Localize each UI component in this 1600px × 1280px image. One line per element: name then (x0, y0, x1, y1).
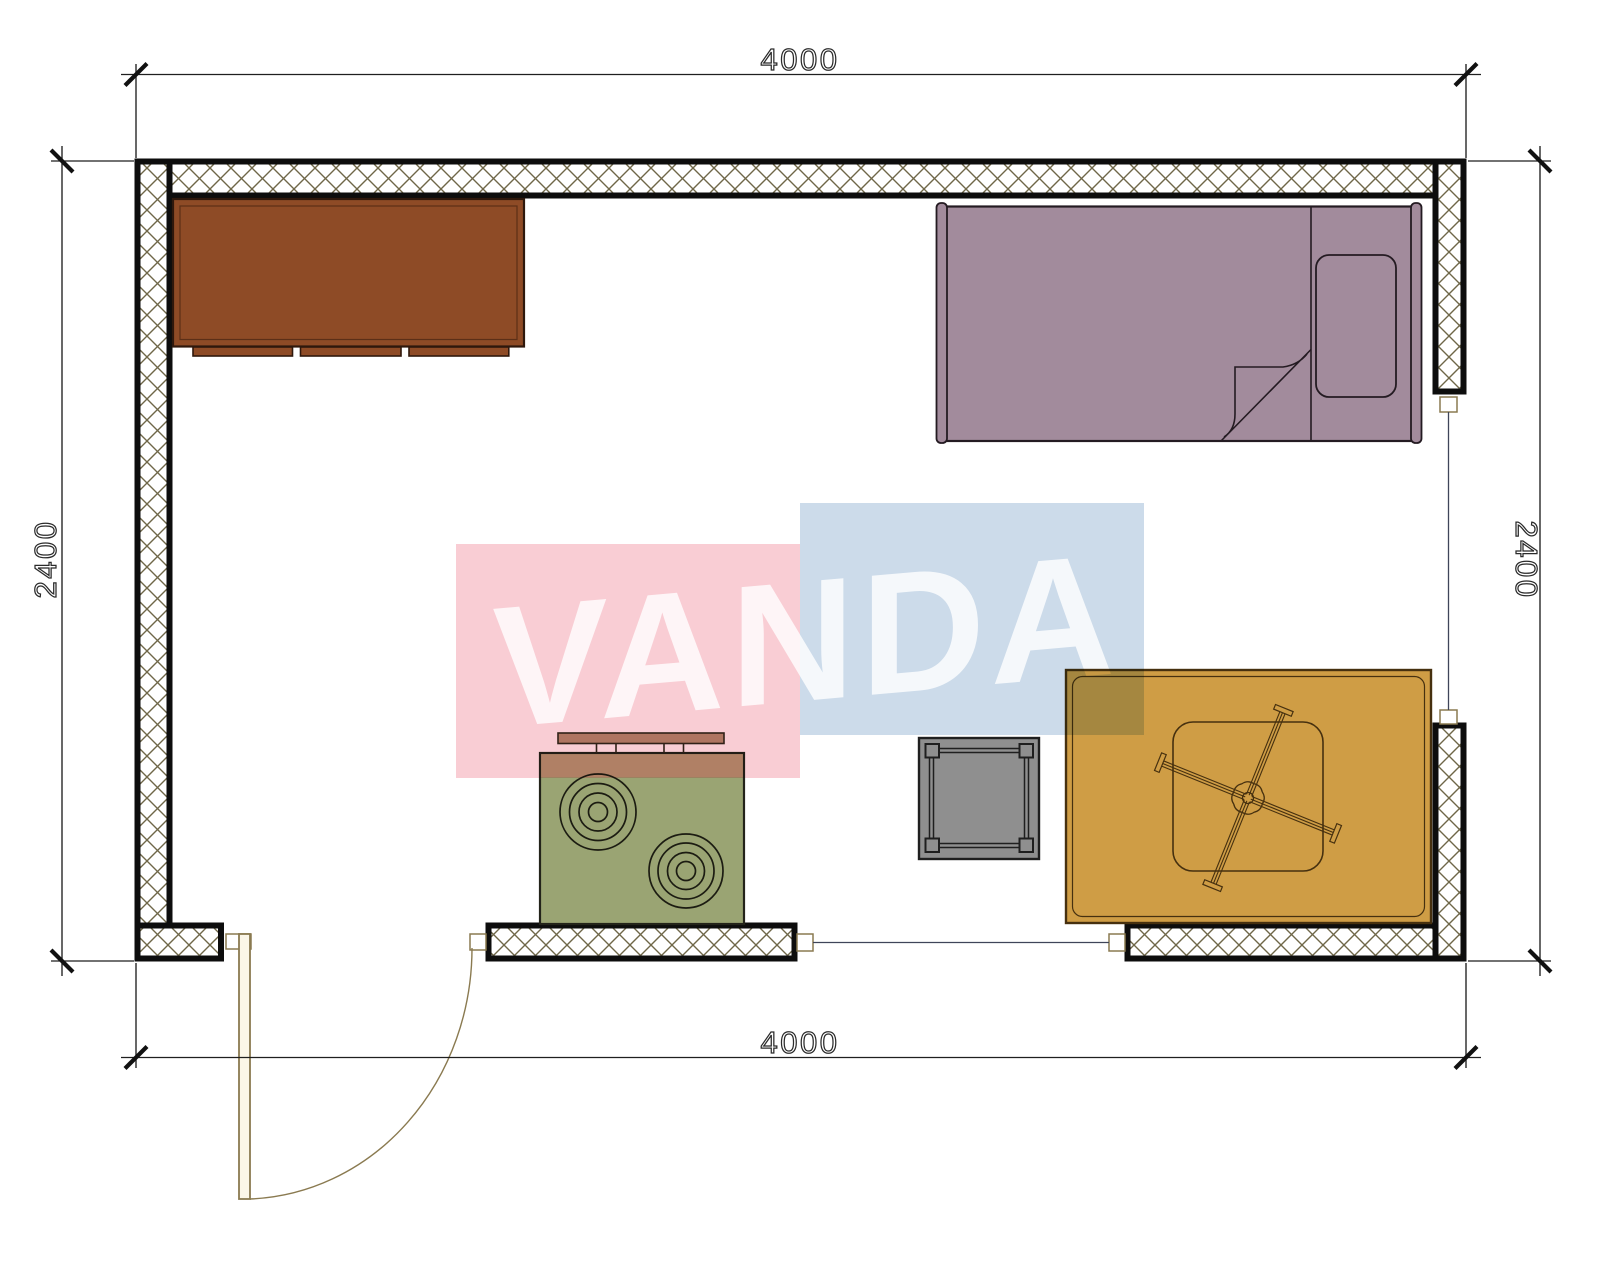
svg-text:4000: 4000 (761, 42, 840, 77)
svg-text:4000: 4000 (761, 1025, 840, 1060)
svg-text:2400: 2400 (28, 520, 63, 599)
svg-text:2400: 2400 (1509, 521, 1544, 600)
